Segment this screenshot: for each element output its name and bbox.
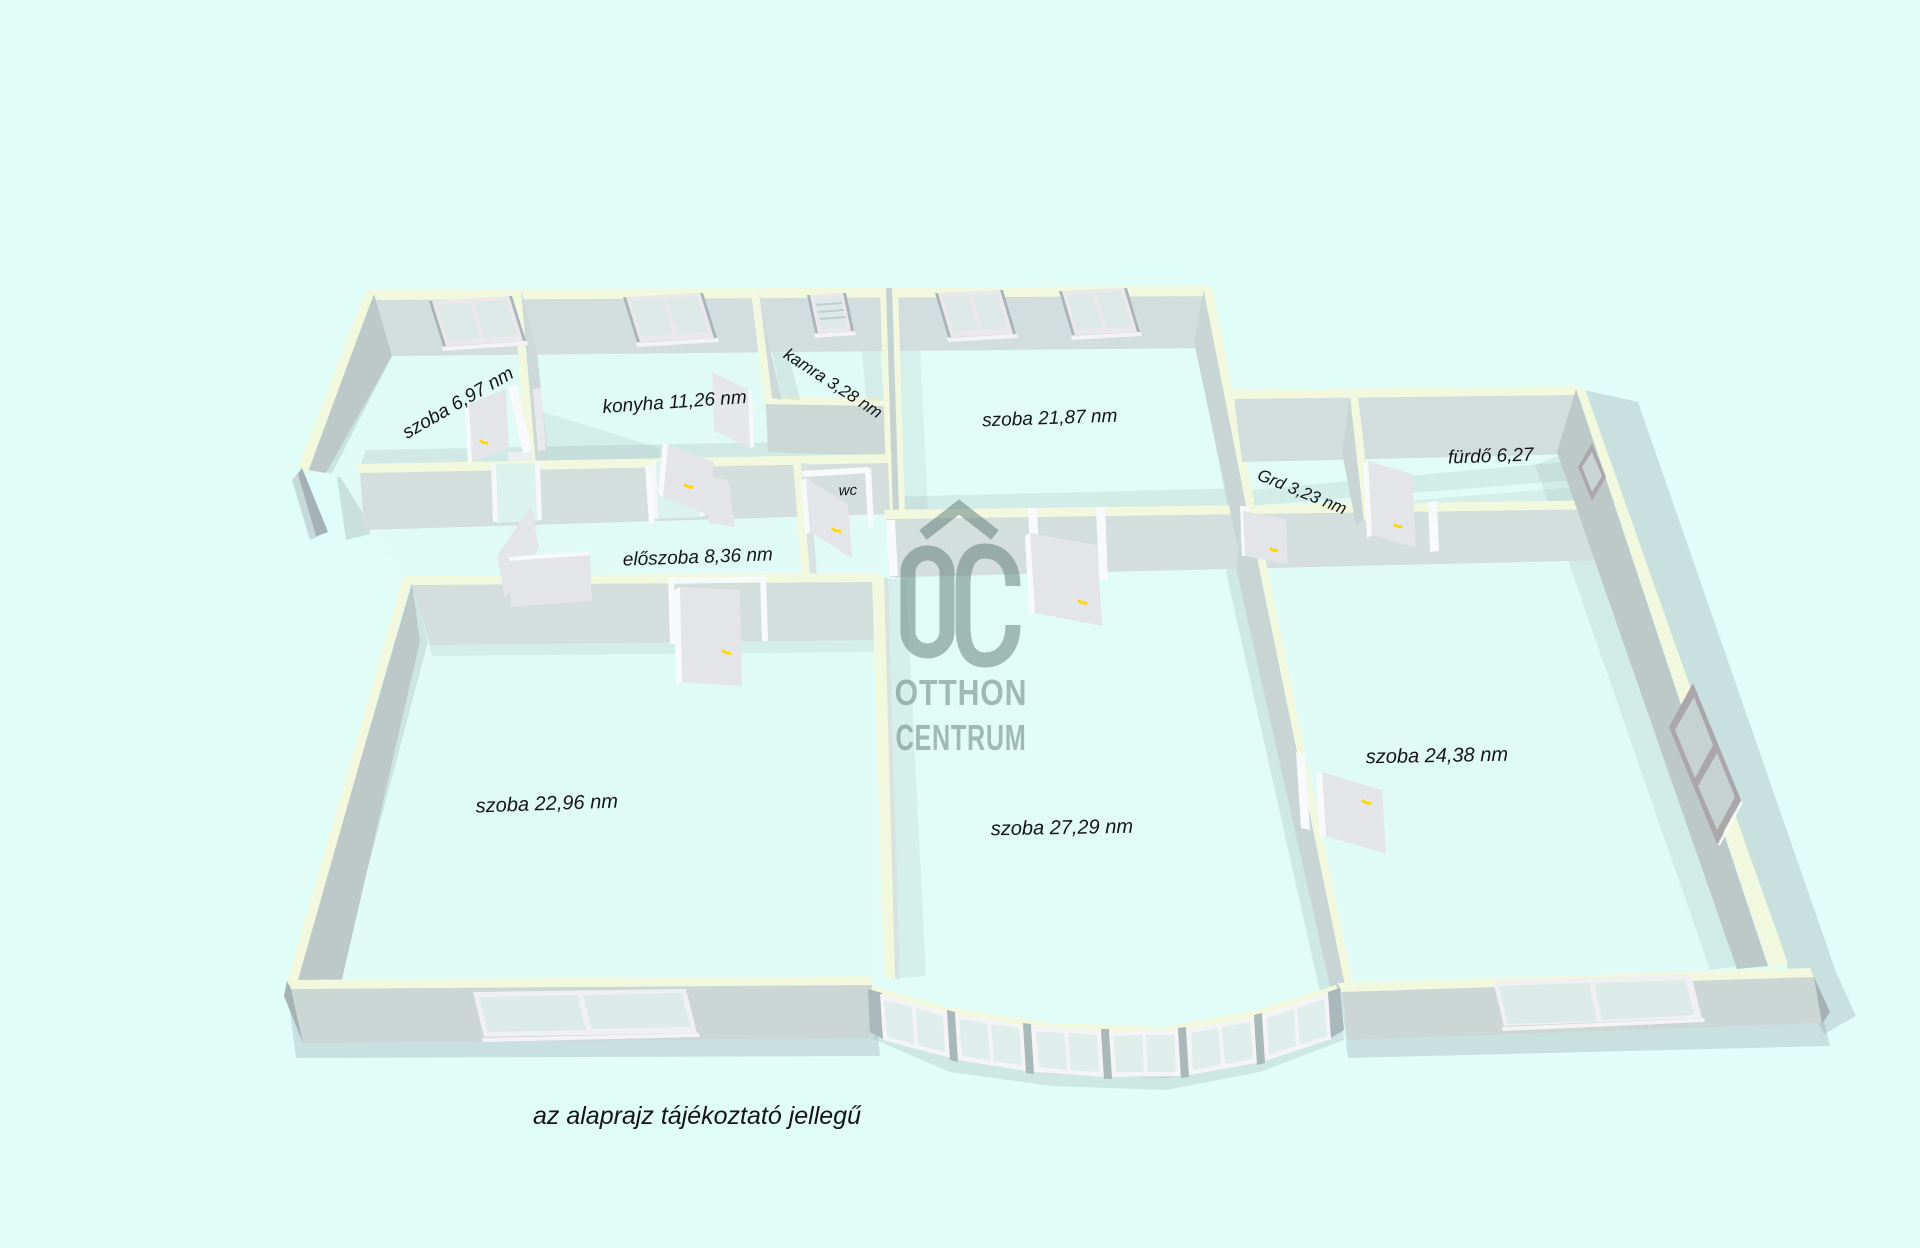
svg-text:OTTHON: OTTHON [895, 674, 1028, 714]
svg-text:szoba 24,38 nm: szoba 24,38 nm [1366, 744, 1509, 768]
svg-text:CENTRUM: CENTRUM [896, 718, 1027, 759]
svg-text:fürdő 6,27: fürdő 6,27 [1448, 444, 1536, 468]
svg-text:az alaprajz tájékoztató jelleg: az alaprajz tájékoztató jellegű [533, 1102, 862, 1130]
svg-text:wc: wc [838, 482, 857, 500]
svg-text:szoba 27,29 nm: szoba 27,29 nm [991, 816, 1134, 840]
